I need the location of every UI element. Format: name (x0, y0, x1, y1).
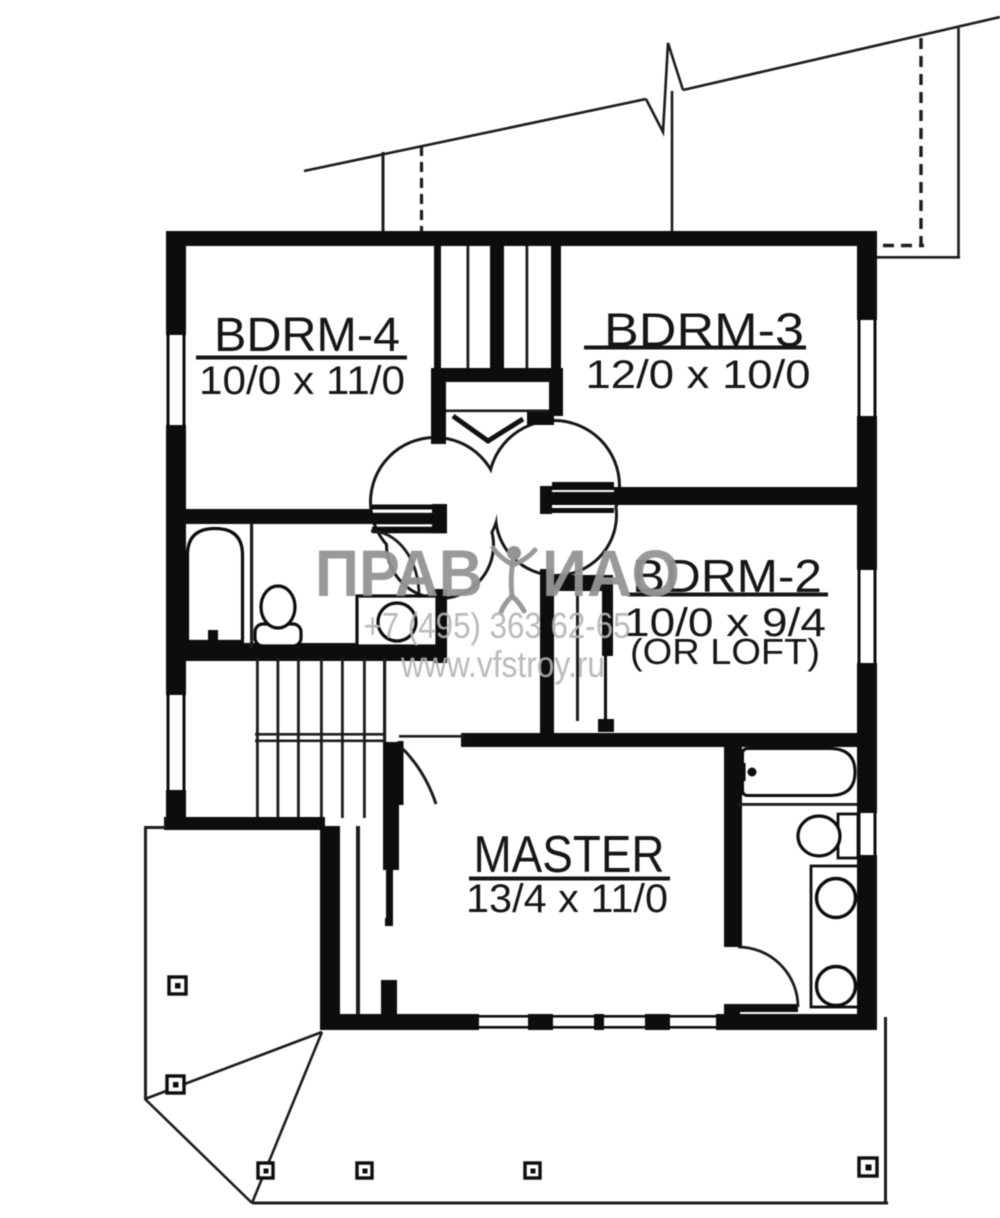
svg-text:BDRM-4: BDRM-4 (214, 309, 400, 362)
svg-text:MASTER: MASTER (474, 826, 665, 884)
svg-text:ИАО: ИАО (542, 536, 680, 610)
svg-text:ПРАВ: ПРАВ (315, 536, 483, 610)
svg-text:www.vfstroy.ru: www.vfstroy.ru (400, 644, 605, 685)
svg-text:+7 (495) 363 62-65: +7 (495) 363 62-65 (364, 605, 631, 646)
svg-text:13/4 x 11/0: 13/4 x 11/0 (466, 877, 668, 921)
svg-text:(OR LOFT): (OR LOFT) (630, 631, 820, 672)
svg-text:10/0 x 11/0: 10/0 x 11/0 (199, 359, 405, 403)
svg-text:12/0 x 10/0: 12/0 x 10/0 (586, 353, 811, 397)
